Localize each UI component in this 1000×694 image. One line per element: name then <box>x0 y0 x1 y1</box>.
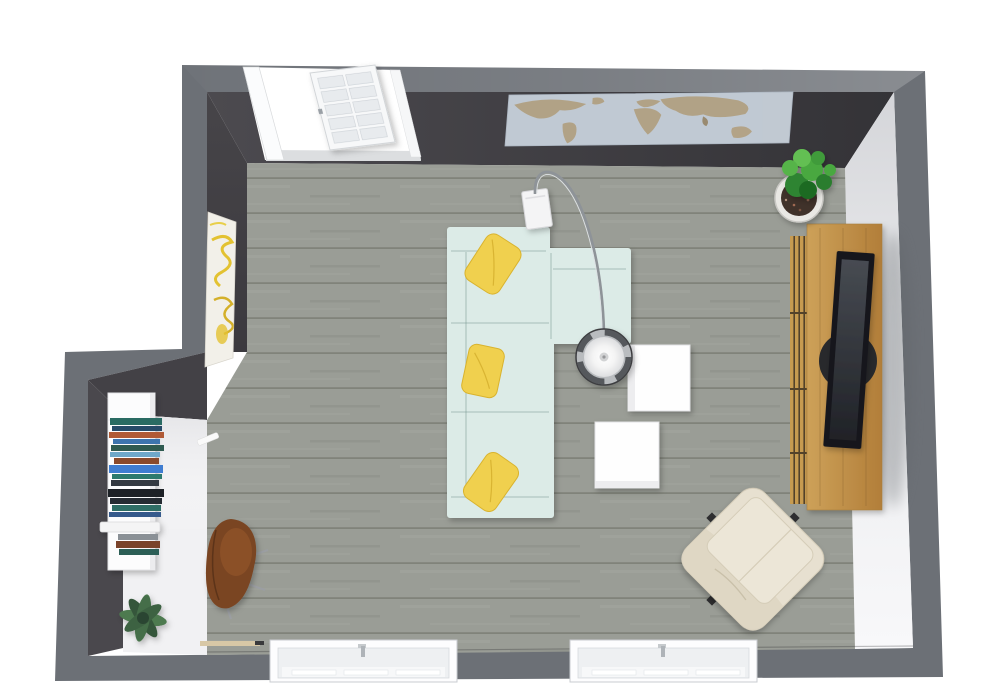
book <box>109 432 164 438</box>
book <box>110 452 160 457</box>
sideboard-shelf-strip <box>100 522 160 532</box>
lamp-base <box>521 188 552 229</box>
door-threshold <box>265 150 421 161</box>
window-2[interactable] <box>570 640 757 682</box>
book <box>111 480 159 486</box>
media-console[interactable] <box>790 224 911 510</box>
book <box>108 489 164 497</box>
book <box>110 498 162 504</box>
side-table-cube-1[interactable] <box>628 345 690 411</box>
chair-highlight <box>220 528 252 576</box>
threshold-strip <box>200 641 260 646</box>
book <box>114 458 159 464</box>
book <box>112 505 161 511</box>
book <box>109 512 161 517</box>
wall-artwork[interactable] <box>205 212 236 367</box>
floorplan-canvas <box>0 0 1000 694</box>
book <box>116 541 160 548</box>
book <box>109 465 163 473</box>
book <box>119 549 159 555</box>
book <box>113 439 160 444</box>
lamp-head <box>576 329 632 385</box>
side-table-cube-2[interactable] <box>595 422 659 488</box>
map-continents <box>505 92 793 146</box>
entry-door[interactable] <box>243 65 421 161</box>
book <box>110 418 162 425</box>
book <box>112 426 162 431</box>
threshold-mark <box>255 641 264 645</box>
book <box>112 474 162 479</box>
book <box>118 534 158 540</box>
window-1[interactable] <box>270 640 457 682</box>
world-map-art[interactable] <box>505 92 793 146</box>
book <box>111 445 164 451</box>
cube-edge <box>595 481 659 488</box>
